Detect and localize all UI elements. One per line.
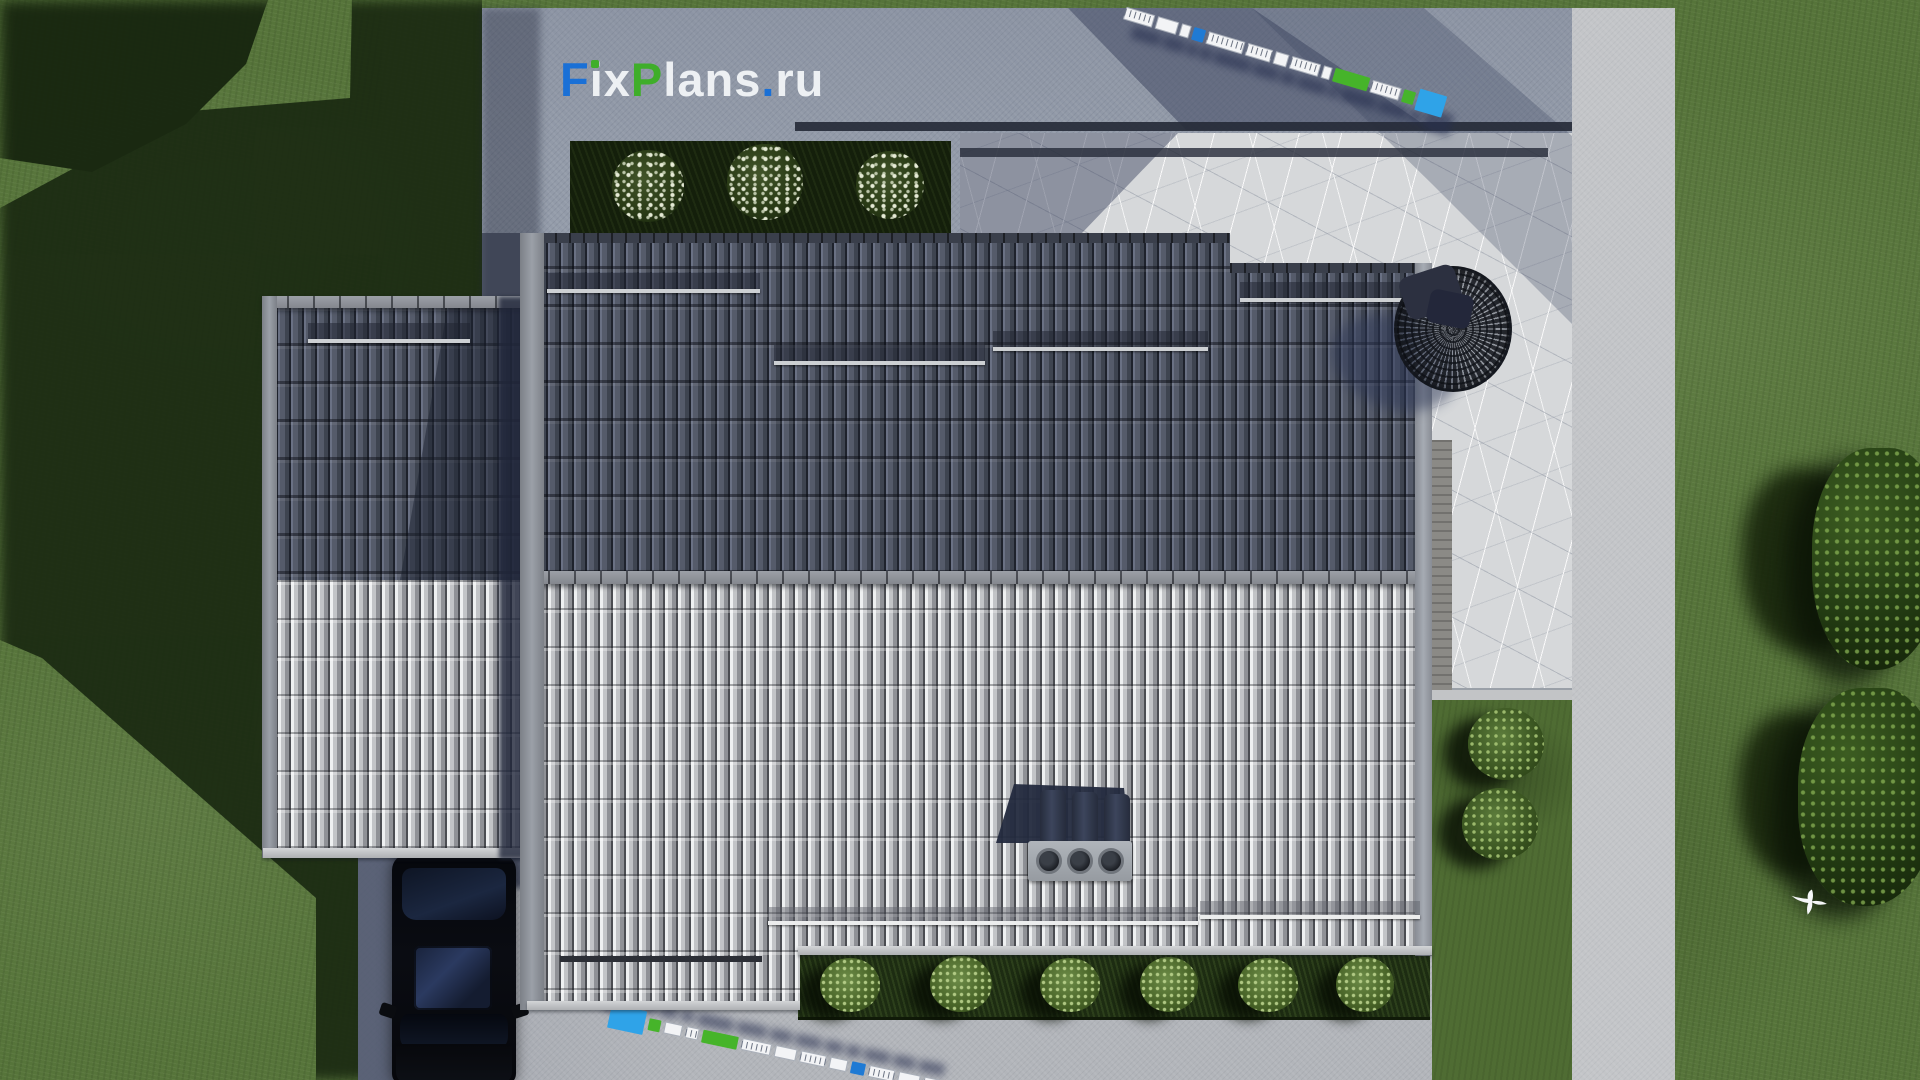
tape-segment: [701, 1029, 739, 1049]
hedge-bush: [1140, 957, 1198, 1012]
tape-segment: [1273, 51, 1290, 67]
roof-vent-band: [547, 273, 760, 289]
tape-segment: [922, 1077, 950, 1080]
tape-segment: [1155, 16, 1180, 35]
hedge-bush: [820, 958, 880, 1012]
tape-segment: [1321, 65, 1333, 80]
bottom-eave: [798, 946, 1432, 955]
aerial-render-scene: FixPlans.ru: [0, 0, 1920, 1080]
chimney-base: [1028, 841, 1132, 881]
logo-letter: x: [604, 53, 631, 106]
tape-segment: [663, 1022, 683, 1037]
tape-segment: [685, 1026, 700, 1040]
roof-vent-band: [768, 907, 1198, 921]
tape-segment: [897, 1071, 921, 1080]
logo-letter-i: i: [590, 52, 604, 107]
tape-segment: [1191, 26, 1206, 42]
chimney-pipe: [1072, 792, 1098, 846]
porch-roof-eave: [527, 1001, 800, 1010]
snow-guard-rail: [560, 956, 762, 962]
tape-segment: [1369, 79, 1401, 100]
chimney-vent: [1036, 848, 1062, 874]
logo-letter: F: [560, 53, 590, 106]
flowering-bush: [727, 144, 803, 220]
roof-vent-band: [1200, 901, 1420, 915]
roof-top-eave: [1230, 263, 1432, 273]
car-rear-window: [402, 868, 506, 920]
logo-i-dot: [591, 60, 599, 68]
hedge-bush: [1238, 958, 1298, 1012]
snow-guard-rail: [993, 347, 1208, 351]
roof-vent-band: [993, 331, 1208, 347]
tape-segment: [828, 1057, 848, 1072]
tape-segment: [799, 1050, 827, 1067]
annex-roof-lower-slope: [263, 580, 527, 851]
flying-bird-icon: [1790, 887, 1829, 917]
parked-car: [392, 854, 516, 1080]
right-facade-wall: [1432, 440, 1452, 690]
left-gable-trim: [520, 233, 544, 1010]
tape-segment: [1123, 6, 1155, 27]
hedge-bush: [1040, 958, 1100, 1012]
hanging-mesh-chair: [1394, 266, 1512, 392]
tape-segment: [867, 1065, 895, 1080]
tape-segment: [740, 1038, 772, 1056]
garden-wall-step: [795, 122, 1572, 131]
main-ridge-cap: [524, 571, 1432, 584]
roof-top-eave: [527, 233, 1230, 243]
snow-guard-rail: [547, 289, 760, 293]
car-hood: [396, 1044, 512, 1080]
car-sunroof: [414, 946, 492, 1010]
tape-segment: [850, 1061, 866, 1076]
chimney-vent: [1067, 848, 1093, 874]
tape-segment: [647, 1018, 661, 1032]
roof-vent-band: [774, 345, 985, 361]
annex-ridge-cap: [263, 296, 527, 308]
tree: [1812, 448, 1920, 670]
flowering-bush: [856, 151, 924, 219]
tape-segment: [1179, 23, 1192, 38]
logo-letters: lans: [663, 53, 761, 106]
tape-segment: [774, 1045, 798, 1061]
tree: [1798, 688, 1920, 906]
snow-guard-rail: [774, 361, 985, 365]
concrete-walkway: [1572, 8, 1675, 1080]
roof-vent-band: [1240, 282, 1415, 298]
tape-segment: [1245, 42, 1274, 62]
logo-letter: P: [631, 53, 663, 106]
garden-bush: [1462, 788, 1538, 860]
flowering-bush: [612, 150, 684, 222]
snow-guard-rail: [1200, 915, 1420, 919]
hedge-bush: [930, 956, 992, 1012]
logo-tld: ru: [775, 53, 824, 106]
hedge-bush: [1336, 957, 1394, 1012]
garden-wall-step: [960, 148, 1548, 157]
chimney-vent: [1098, 848, 1124, 874]
tape-segment: [1289, 55, 1321, 76]
logo-dot: .: [761, 53, 775, 106]
snow-guard-rail: [768, 921, 1198, 925]
annex-gable-trim: [262, 296, 277, 858]
tape-segment: [1401, 89, 1416, 105]
fixplans-watermark: FixPlans.ru: [560, 52, 824, 107]
annex-eave: [263, 848, 529, 858]
chimney-pipe: [1040, 790, 1066, 844]
snow-guard-rail: [1240, 298, 1415, 302]
garden-bush: [1468, 708, 1544, 780]
snow-guard-rail: [308, 339, 470, 343]
chimney-pipe: [1104, 794, 1130, 848]
roof-vent-band: [308, 323, 470, 339]
chair-cushion: [1425, 288, 1475, 330]
car-windshield: [400, 1014, 508, 1048]
